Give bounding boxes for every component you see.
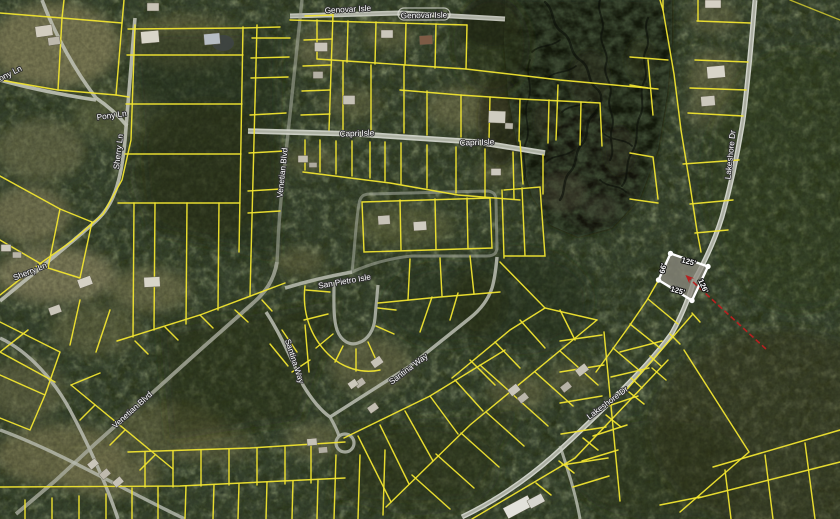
svg-text:Genovar Isle: Genovar Isle — [401, 11, 448, 21]
svg-text:Capri Isle: Capri Isle — [459, 137, 494, 147]
svg-text:Capri Isle: Capri Isle — [339, 128, 374, 138]
